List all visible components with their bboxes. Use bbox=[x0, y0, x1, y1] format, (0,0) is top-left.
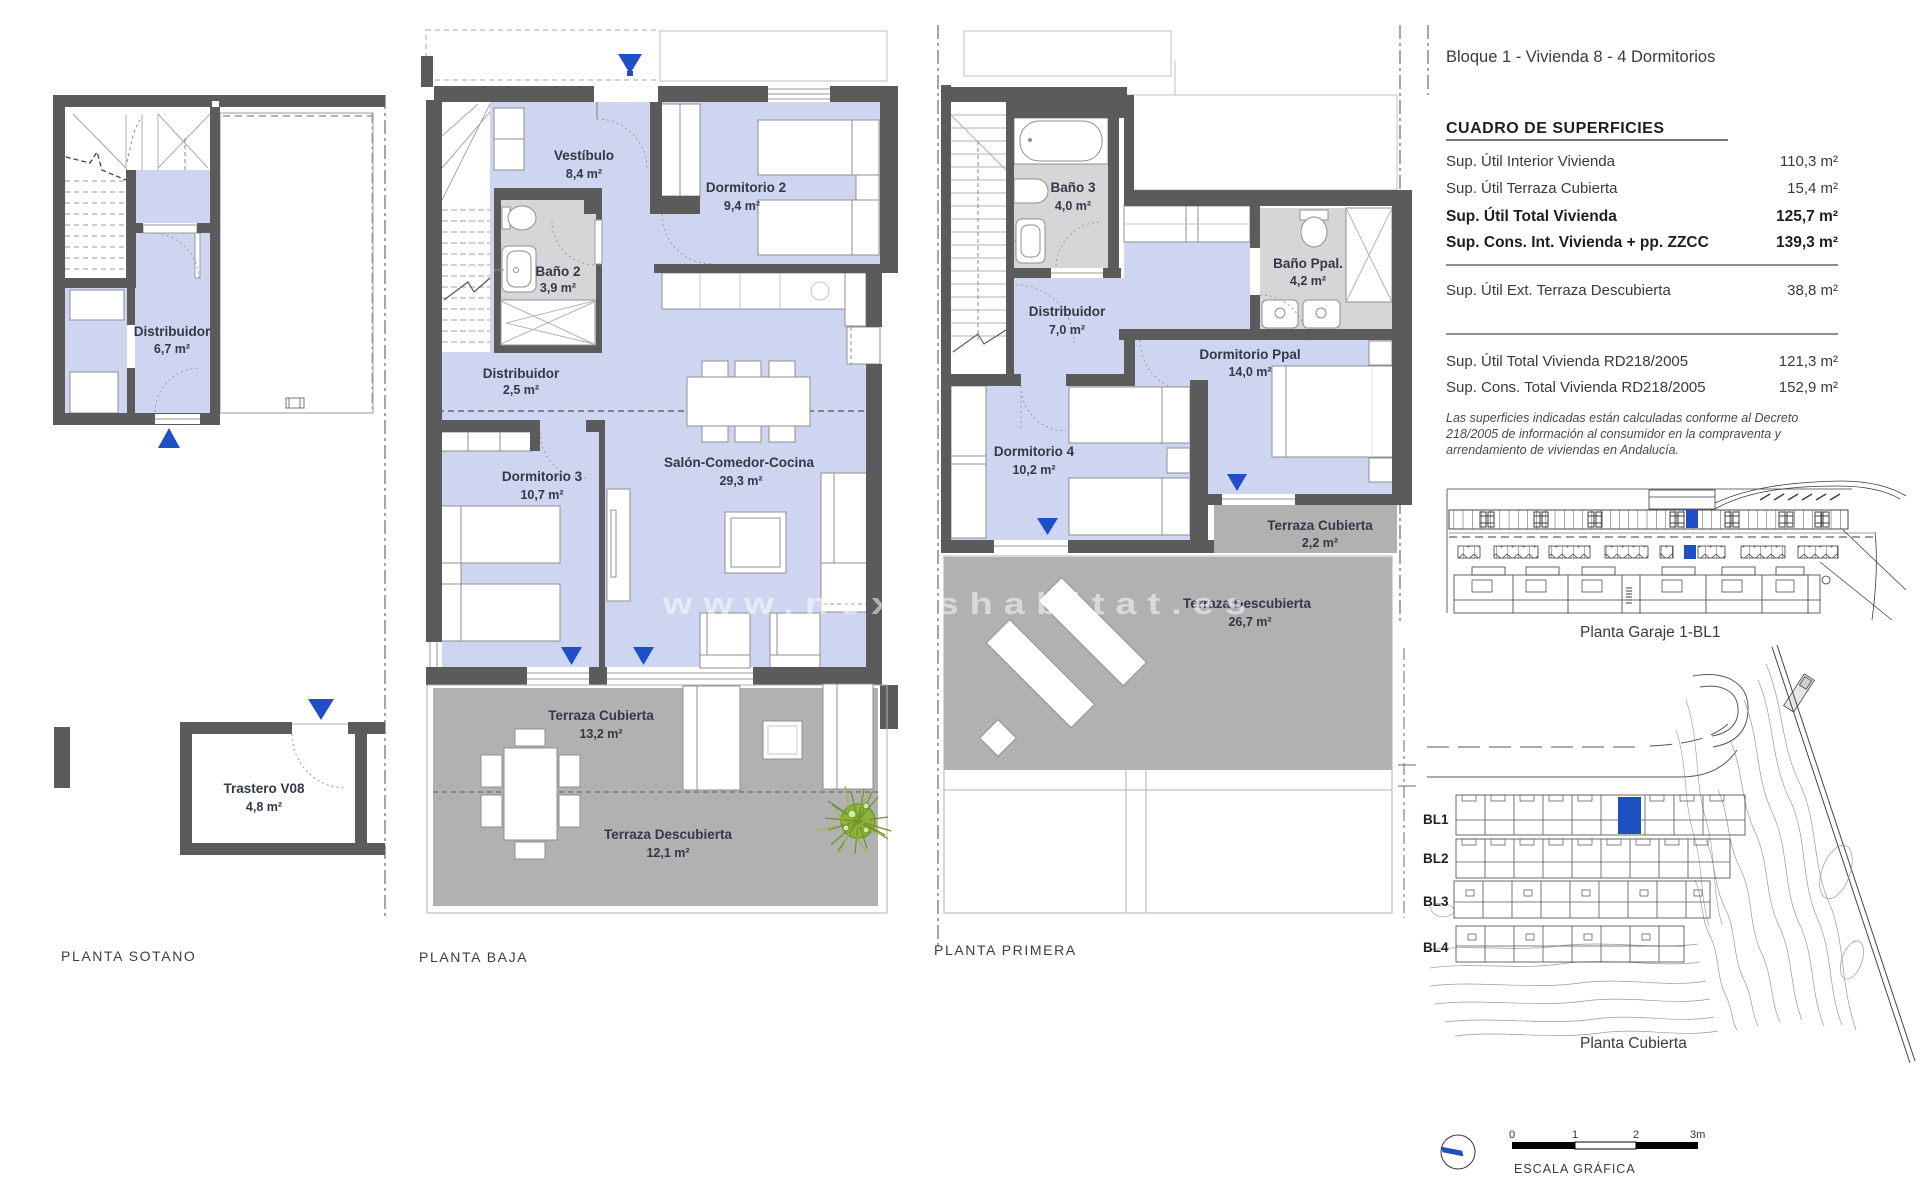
svg-text:ESCALA GRÁFICA: ESCALA GRÁFICA bbox=[1514, 1161, 1636, 1176]
svg-text:Sup. Útil Interior Vivienda: Sup. Útil Interior Vivienda bbox=[1446, 153, 1616, 170]
svg-text:29,3 m²: 29,3 m² bbox=[719, 474, 762, 488]
svg-text:14,0 m²: 14,0 m² bbox=[1228, 365, 1271, 379]
svg-text:10,2 m²: 10,2 m² bbox=[1012, 463, 1055, 477]
svg-text:Sup. Útil Terraza Cubierta: Sup. Útil Terraza Cubierta bbox=[1446, 180, 1618, 197]
svg-text:110,3 m²: 110,3 m² bbox=[1780, 153, 1838, 170]
svg-text:2,2 m²: 2,2 m² bbox=[1302, 536, 1338, 550]
svg-text:7,0 m²: 7,0 m² bbox=[1049, 323, 1085, 337]
svg-text:www.nexushabitat.es: www.nexushabitat.es bbox=[662, 586, 1257, 621]
svg-text:Planta Garaje 1-BL1: Planta Garaje 1-BL1 bbox=[1580, 624, 1720, 641]
svg-text:Terraza Cubierta: Terraza Cubierta bbox=[1267, 518, 1373, 533]
svg-text:Terraza Descubierta: Terraza Descubierta bbox=[604, 827, 733, 842]
svg-text:Sup. Útil Total Vivienda: Sup. Útil Total Vivienda bbox=[1446, 207, 1617, 225]
svg-text:Sup. Útil Total Vivienda RD218: Sup. Útil Total Vivienda RD218/2005 bbox=[1446, 353, 1688, 370]
svg-text:arrendamiento de viviendas en: arrendamiento de viviendas en Andalucía. bbox=[1446, 443, 1679, 457]
svg-text:Baño 2: Baño 2 bbox=[535, 264, 580, 279]
svg-text:Dormitorio 4: Dormitorio 4 bbox=[994, 444, 1075, 459]
svg-text:3,9 m²: 3,9 m² bbox=[540, 281, 576, 295]
svg-text:125,7 m²: 125,7 m² bbox=[1776, 208, 1838, 225]
svg-text:Distribuidor: Distribuidor bbox=[134, 324, 211, 339]
svg-text:218/2005 de información al con: 218/2005 de información al consumidor en… bbox=[1445, 427, 1782, 441]
svg-text:Baño 3: Baño 3 bbox=[1050, 180, 1096, 195]
svg-text:0: 0 bbox=[1509, 1129, 1515, 1141]
svg-text:4,2 m²: 4,2 m² bbox=[1290, 274, 1326, 288]
svg-text:Dormitorio 2: Dormitorio 2 bbox=[706, 180, 786, 195]
svg-text:BL3: BL3 bbox=[1423, 894, 1449, 909]
svg-text:PLANTA BAJA: PLANTA BAJA bbox=[419, 949, 528, 965]
svg-text:15,4 m²: 15,4 m² bbox=[1787, 180, 1838, 197]
svg-text:152,9 m²: 152,9 m² bbox=[1779, 379, 1838, 396]
svg-text:Sup. Cons. Total Vivienda RD21: Sup. Cons. Total Vivienda RD218/2005 bbox=[1446, 379, 1706, 396]
svg-text:4,0 m²: 4,0 m² bbox=[1055, 199, 1091, 213]
svg-text:Salón-Comedor-Cocina: Salón-Comedor-Cocina bbox=[664, 455, 815, 470]
svg-text:Baño Ppal.: Baño Ppal. bbox=[1273, 256, 1343, 271]
svg-text:Dormitorio 3: Dormitorio 3 bbox=[502, 469, 583, 484]
svg-text:Las superficies indicadas está: Las superficies indicadas están calculad… bbox=[1446, 411, 1798, 425]
svg-text:BL2: BL2 bbox=[1423, 851, 1449, 866]
svg-text:Sup. Cons. Int. Vivienda + pp.: Sup. Cons. Int. Vivienda + pp. ZZCC bbox=[1446, 234, 1709, 251]
svg-text:12,1 m²: 12,1 m² bbox=[646, 846, 689, 860]
svg-text:4,8 m²: 4,8 m² bbox=[246, 800, 282, 814]
svg-text:Vestíbulo: Vestíbulo bbox=[554, 148, 614, 163]
svg-text:139,3 m²: 139,3 m² bbox=[1776, 234, 1838, 251]
svg-text:Distribuidor: Distribuidor bbox=[483, 366, 560, 381]
svg-text:10,7 m²: 10,7 m² bbox=[520, 488, 563, 502]
svg-text:3m: 3m bbox=[1690, 1129, 1705, 1141]
svg-text:9,4 m²: 9,4 m² bbox=[724, 199, 760, 213]
svg-text:Terraza Cubierta: Terraza Cubierta bbox=[548, 708, 654, 723]
svg-text:1: 1 bbox=[1572, 1129, 1578, 1141]
svg-text:13,2 m²: 13,2 m² bbox=[579, 727, 622, 741]
svg-text:38,8 m²: 38,8 m² bbox=[1787, 282, 1838, 299]
svg-text:Dormitorio Ppal: Dormitorio Ppal bbox=[1199, 347, 1300, 362]
svg-text:BL1: BL1 bbox=[1423, 812, 1449, 827]
svg-text:8,4 m²: 8,4 m² bbox=[566, 167, 602, 181]
svg-text:Planta Cubierta: Planta Cubierta bbox=[1580, 1035, 1687, 1052]
svg-text:121,3 m²: 121,3 m² bbox=[1779, 353, 1838, 370]
svg-text:Trastero V08: Trastero V08 bbox=[223, 781, 305, 796]
svg-text:CUADRO DE SUPERFICIES: CUADRO DE SUPERFICIES bbox=[1446, 120, 1665, 137]
svg-text:PLANTA SOTANO: PLANTA SOTANO bbox=[61, 948, 196, 964]
svg-text:BL4: BL4 bbox=[1423, 940, 1449, 955]
svg-text:2: 2 bbox=[1633, 1129, 1639, 1141]
svg-text:Distribuidor: Distribuidor bbox=[1029, 304, 1106, 319]
svg-text:Sup. Útil Ext. Terraza Descubi: Sup. Útil Ext. Terraza Descubierta bbox=[1446, 282, 1671, 299]
svg-text:2,5 m²: 2,5 m² bbox=[503, 383, 539, 397]
svg-text:Bloque 1 - Vivienda 8 - 4 Dorm: Bloque 1 - Vivienda 8 - 4 Dormitorios bbox=[1446, 48, 1715, 66]
svg-text:PLANTA PRIMERA: PLANTA PRIMERA bbox=[934, 942, 1077, 958]
svg-text:6,7 m²: 6,7 m² bbox=[154, 342, 190, 356]
